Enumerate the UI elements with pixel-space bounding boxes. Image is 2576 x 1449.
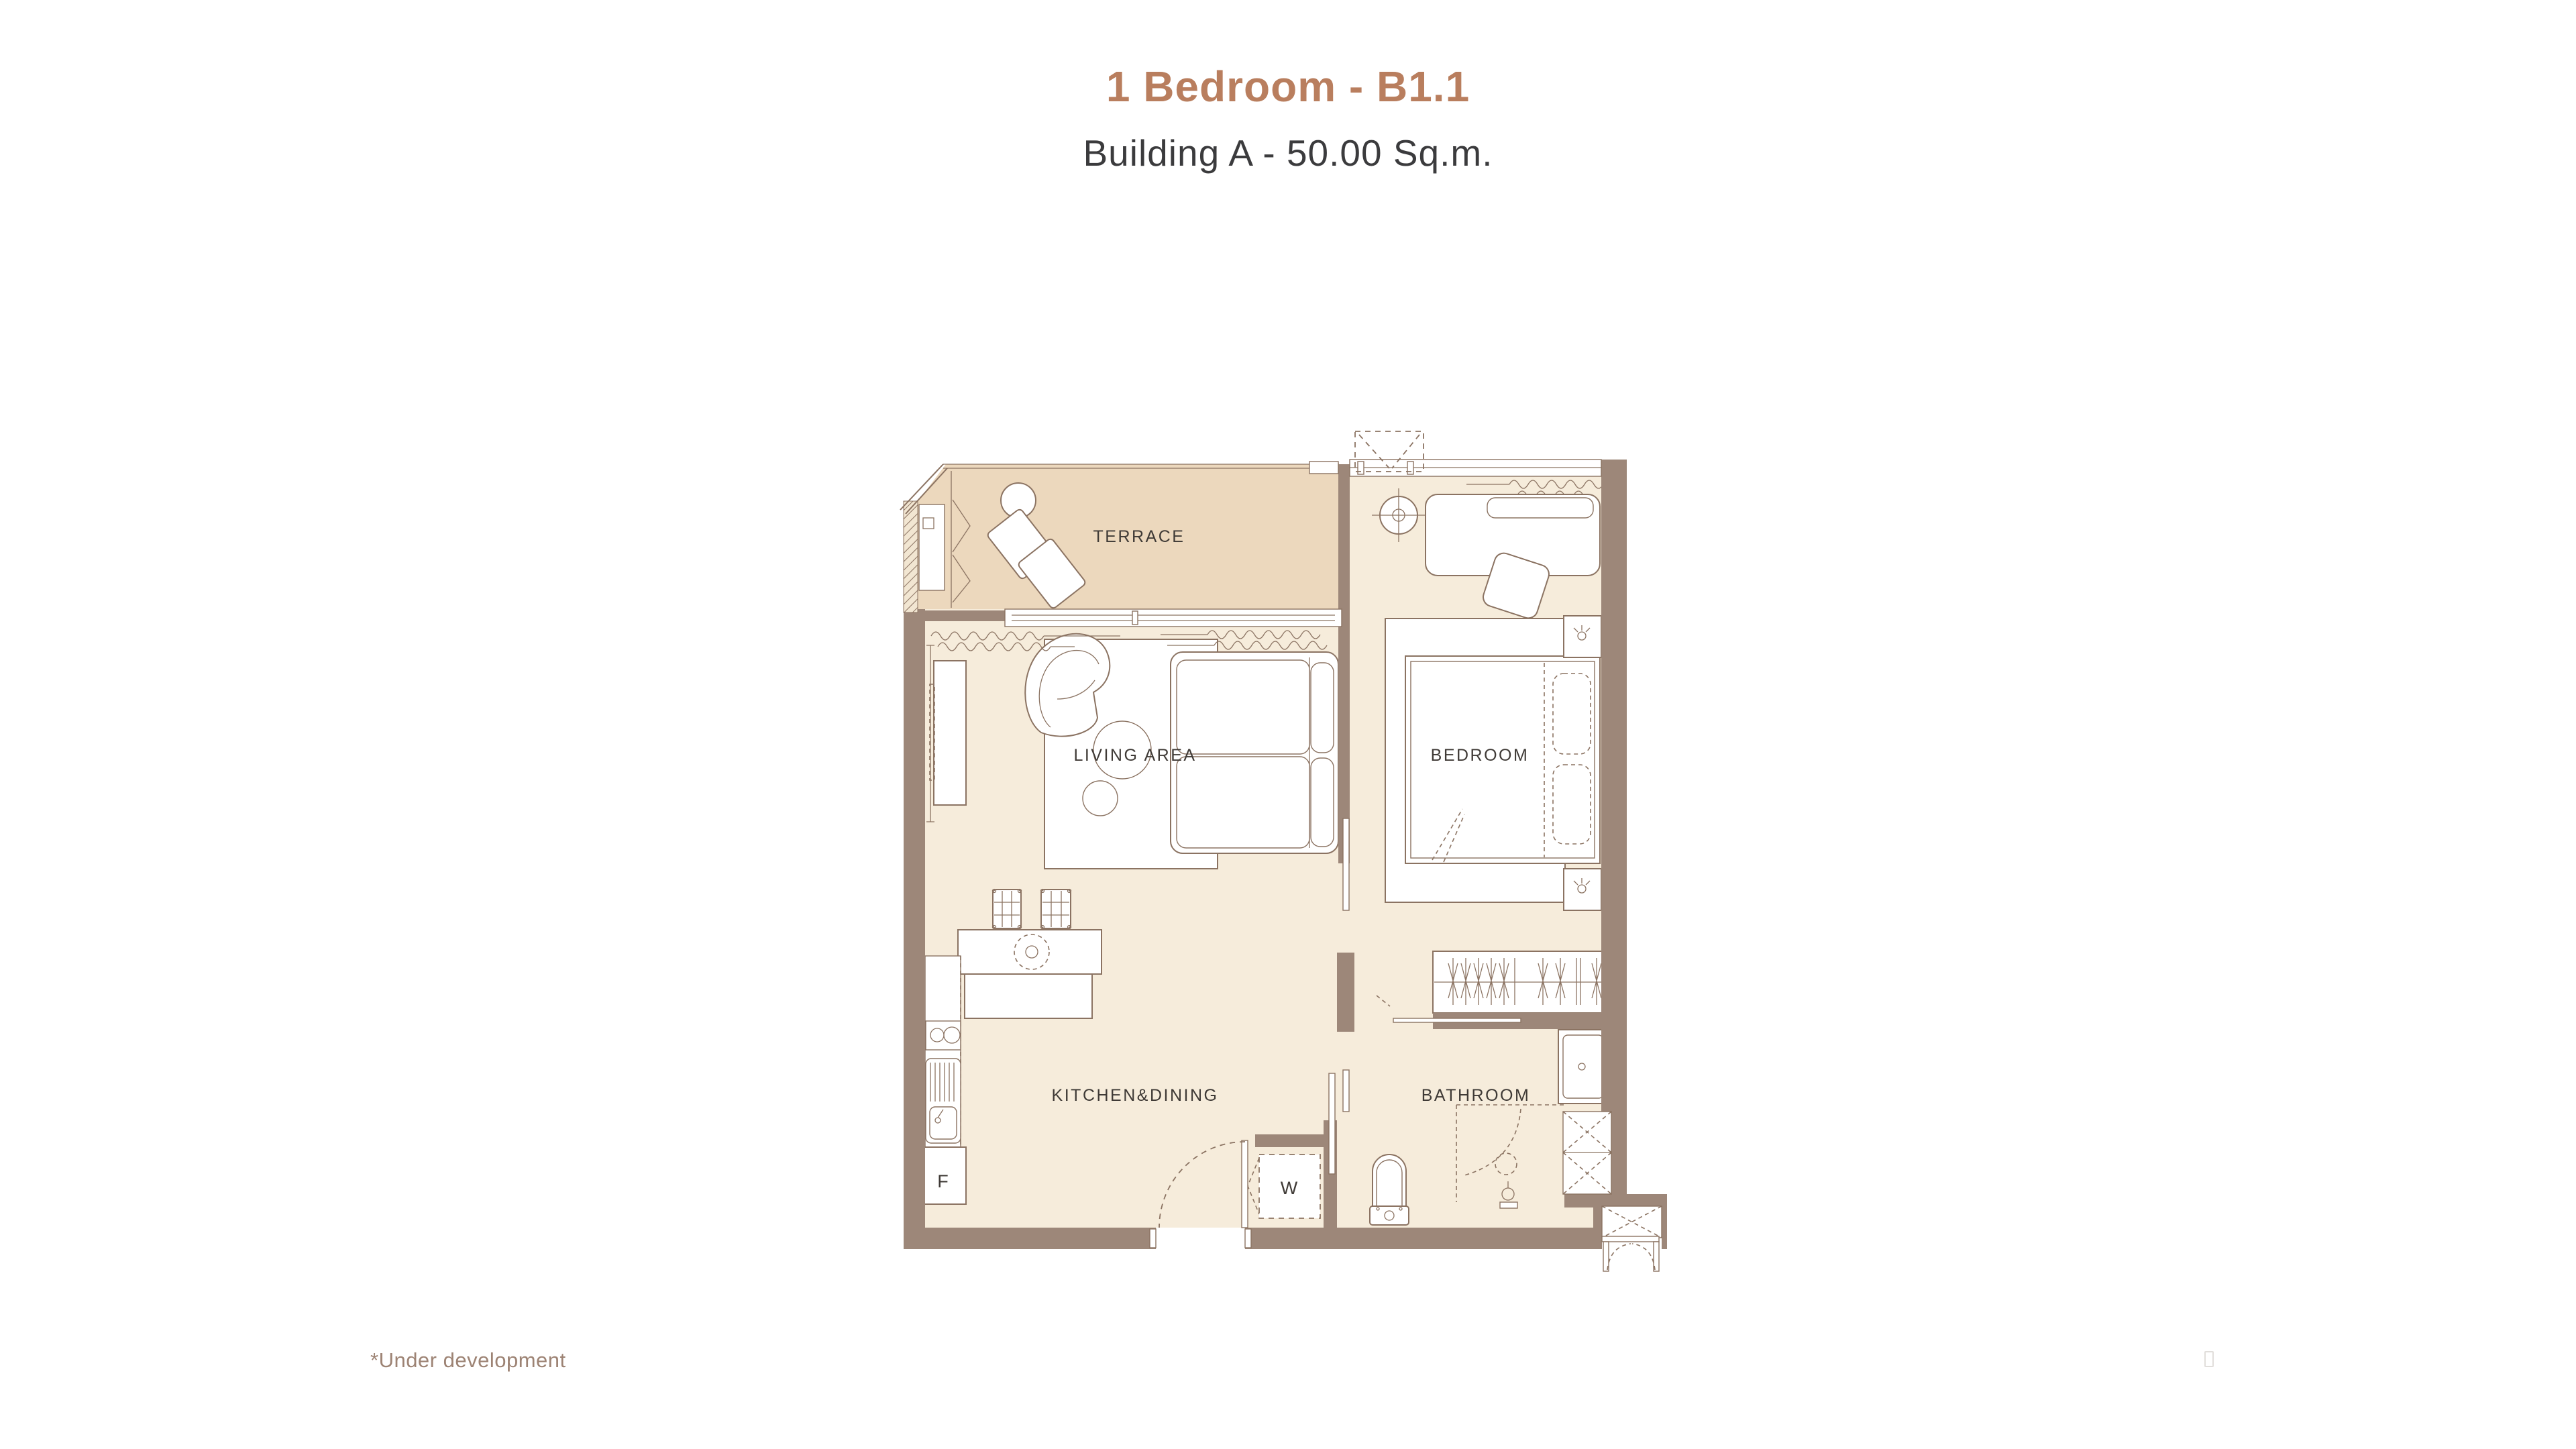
toilet-symbol <box>1370 1155 1409 1225</box>
fridge-label: F <box>937 1171 949 1191</box>
wall-shaft-leg <box>1593 1207 1602 1249</box>
wall-terrace-beam <box>919 610 1005 621</box>
desk-shelf-symbol <box>1487 498 1593 518</box>
wardrobe-track <box>1393 1018 1521 1022</box>
tv-console-symbol <box>934 661 966 805</box>
terrace-sliding-door <box>1005 609 1342 627</box>
dining-table-symbol <box>958 930 1102 974</box>
dining-chair-symbol <box>1041 890 1071 929</box>
nightstand-symbol <box>1564 616 1601 657</box>
page-subtitle: Building A - 50.00 Sq.m. <box>0 131 2576 174</box>
wall-bottom-left <box>904 1228 1156 1249</box>
bedroom-sliding-door <box>1343 1070 1349 1112</box>
kitchen-island-symbol <box>965 974 1092 1018</box>
wall-right <box>1601 460 1627 1207</box>
page-title: 1 Bedroom - B1.1 <box>0 62 2576 111</box>
bathroom-sliding-door <box>1329 1073 1335 1174</box>
terrace-label: TERRACE <box>1093 527 1185 546</box>
planter-box-symbol <box>919 504 945 590</box>
bedroom-sliding-door <box>1343 818 1349 910</box>
terrace-junction-frame <box>1309 462 1338 474</box>
kitchen-dining-label: KITCHEN&DINING <box>1052 1086 1219 1105</box>
exterior-shaft-symbol <box>1602 1206 1662 1271</box>
dining-chair-symbol <box>993 890 1022 929</box>
wall-shaft-leg <box>1662 1207 1667 1249</box>
wall-washer-top <box>1255 1134 1324 1147</box>
bathroom-label: BATHROOM <box>1421 1086 1531 1105</box>
page-artifact-mark <box>2204 1351 2214 1367</box>
wall-shaft-filler <box>1611 1112 1627 1194</box>
wall-left <box>904 609 925 1249</box>
wall-hatched-planter <box>904 501 918 612</box>
living-area-label: LIVING AREA <box>1073 746 1196 765</box>
side-table-symbol <box>1083 781 1118 816</box>
wall-bottom-right <box>1245 1228 1597 1249</box>
nightstand-symbol <box>1564 869 1601 910</box>
sink-symbol <box>926 1059 961 1143</box>
duct-shaft-symbol <box>1563 1112 1611 1194</box>
floor-plan-page: 1 Bedroom - B1.1 Building A - 50.00 Sq.m… <box>0 0 2576 1449</box>
cooktop-symbol <box>926 1021 961 1050</box>
bedroom-label: BEDROOM <box>1431 746 1529 765</box>
wall-shaft-band <box>1564 1194 1667 1207</box>
floor-plan-drawing: TERRACE LIVING AREA BEDROOM KITCHEN&DINI… <box>899 429 1677 1281</box>
wall-stub-bedroom <box>1337 953 1354 1032</box>
bedroom-window <box>1350 460 1601 476</box>
wardrobe-symbol <box>1433 951 1611 1013</box>
under-development-note: *Under development <box>370 1348 566 1373</box>
washer-label: W <box>1281 1178 1298 1198</box>
